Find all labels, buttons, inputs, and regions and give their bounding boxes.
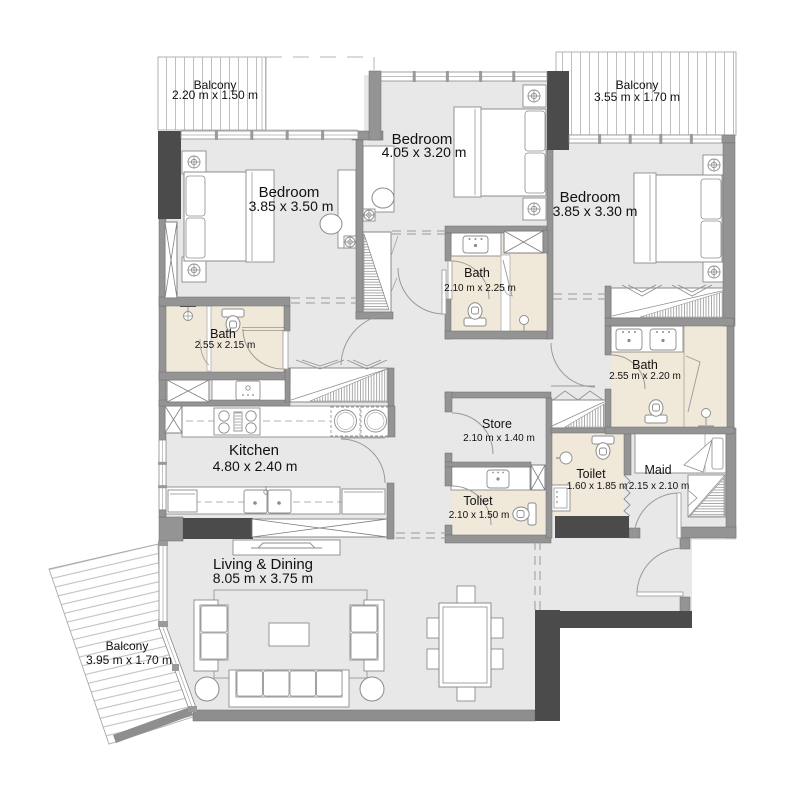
- svg-text:4.80 x 2.40 m: 4.80 x 2.40 m: [213, 458, 298, 474]
- svg-text:Bath: Bath: [210, 327, 236, 341]
- svg-text:1.60 x 1.85 m: 1.60 x 1.85 m: [567, 481, 628, 492]
- svg-text:2.10 m x 2.25 m: 2.10 m x 2.25 m: [444, 283, 516, 294]
- svg-text:3.55 m x 1.70 m: 3.55 m x 1.70 m: [594, 90, 680, 104]
- svg-text:Kitchen: Kitchen: [229, 442, 279, 459]
- svg-text:2.55 m x 2.20 m: 2.55 m x 2.20 m: [609, 371, 681, 382]
- svg-text:3.95 m x 1.70 m: 3.95 m x 1.70 m: [86, 653, 172, 667]
- svg-text:Toliet: Toliet: [463, 494, 493, 508]
- svg-text:2.10 m x 1.40 m: 2.10 m x 1.40 m: [463, 433, 535, 444]
- svg-text:Toilet: Toilet: [576, 467, 606, 481]
- svg-text:2.55 x 2.15 m: 2.55 x 2.15 m: [195, 340, 256, 351]
- svg-text:2.20 m x 1.50 m: 2.20 m x 1.50 m: [172, 88, 258, 102]
- svg-text:8.05 m x 3.75 m: 8.05 m x 3.75 m: [213, 570, 313, 586]
- svg-text:3.85 x 3.30 m: 3.85 x 3.30 m: [553, 203, 638, 219]
- svg-text:Store: Store: [482, 417, 512, 431]
- svg-text:Bath: Bath: [632, 358, 658, 372]
- svg-text:2.10 x 1.50 m: 2.10 x 1.50 m: [449, 510, 510, 521]
- svg-text:3.85 x 3.50 m: 3.85 x 3.50 m: [249, 198, 334, 214]
- svg-text:4.05 x 3.20 m: 4.05 x 3.20 m: [382, 144, 467, 160]
- svg-text:2.15 x 2.10 m: 2.15 x 2.10 m: [629, 481, 690, 492]
- svg-text:Bath: Bath: [464, 266, 490, 280]
- svg-text:Balcony: Balcony: [106, 639, 149, 653]
- svg-text:Maid: Maid: [644, 463, 671, 477]
